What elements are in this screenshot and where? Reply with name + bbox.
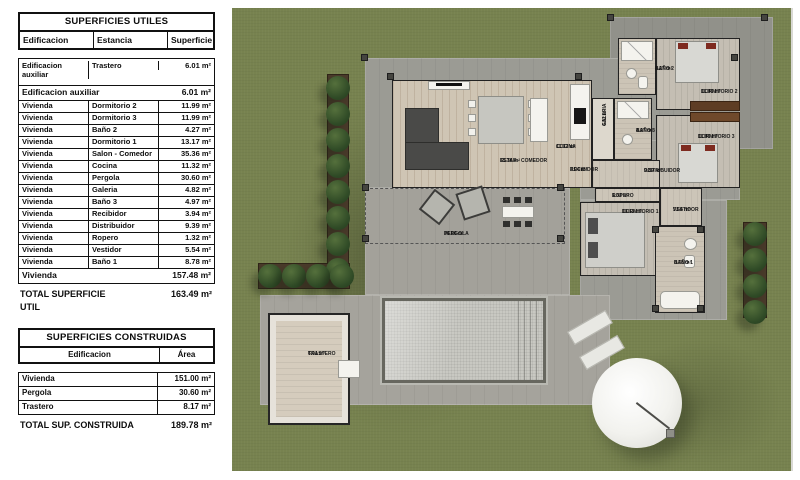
cell-superficie: 6.01 m²: [159, 61, 214, 70]
pillar: [652, 305, 659, 312]
pillar: [557, 184, 564, 191]
cell-superficie: 11.32 m²: [159, 161, 214, 172]
cell-estancia: Baño 2: [89, 125, 159, 136]
col-header-superficie: Superficie: [168, 32, 213, 48]
cell-superficie: 8.78 m²: [159, 257, 214, 268]
pillar: [652, 226, 659, 233]
shower: [621, 41, 653, 61]
outdoor-chair: [503, 197, 510, 203]
cell-area: 8.17 m²: [158, 401, 214, 414]
subtotal-label: Edificacion auxiliar: [19, 86, 115, 100]
tree: [743, 248, 767, 272]
subtotal-label: Vivienda: [19, 269, 115, 283]
cell-superficie: 5.54 m²: [159, 245, 214, 256]
cooktop: [574, 108, 586, 124]
cell-estancia: Ropero: [89, 233, 159, 244]
cell-estancia: Distribuidor: [89, 221, 159, 232]
table-title: SUPERFICIES CONSTRUIDAS: [18, 328, 215, 348]
table-body: Edificacion auxiliarTrastero6.01 m² Edif…: [18, 58, 215, 284]
cell-edificacion: Vivienda: [19, 101, 89, 112]
cell-edificacion: Edificacion auxiliar: [19, 61, 89, 79]
site-plan: ESTAR - COMEDOR35.36 m² COCINA11.32 m² R…: [232, 8, 793, 471]
pillar: [361, 54, 368, 61]
table-row: ViviendaVestidor5.54 m²: [19, 244, 214, 256]
table-row: ViviendaRecibidor3.94 m²: [19, 208, 214, 220]
outdoor-chair: [514, 221, 521, 227]
sink: [622, 134, 633, 145]
cell-area: 151.00 m²: [158, 373, 214, 386]
sink: [626, 68, 637, 79]
col-header-area: Área: [160, 348, 213, 362]
cell-superficie: 4.97 m²: [159, 197, 214, 208]
subtotal-row: Vivienda157.48 m²: [19, 268, 214, 283]
cell-superficie: 11.99 m²: [159, 113, 214, 124]
cell-estancia: Salon - Comedor: [89, 149, 159, 160]
cell-edificacion: Vivienda: [19, 233, 89, 244]
cell-edificacion: Pergola: [19, 387, 158, 400]
wardrobe: [690, 112, 740, 122]
cell-estancia: Galeria: [89, 185, 159, 196]
cell-superficie: 11.99 m²: [159, 101, 214, 112]
cell-edificacion: Vivienda: [19, 373, 158, 386]
pillow: [678, 43, 688, 49]
toilet: [638, 76, 648, 89]
col-header-estancia: Estancia: [94, 32, 168, 48]
pillar: [607, 14, 614, 21]
tree: [743, 222, 767, 246]
pillar: [387, 73, 394, 80]
cell-superficie: 1.32 m²: [159, 233, 214, 244]
table-column-headers: Edificacion Área: [18, 346, 215, 364]
floorplan-sheet: SUPERFICIES UTILES Edificacion Estancia …: [0, 0, 800, 480]
cell-edificacion: Vivienda: [19, 125, 89, 136]
col-header-edificacion: Edificacion: [20, 32, 94, 48]
cell-edificacion: Vivienda: [19, 137, 89, 148]
total-value: 163.49 m²: [115, 288, 216, 302]
pillar: [731, 54, 738, 61]
pillar: [697, 226, 704, 233]
table-row: ViviendaCocina11.32 m²: [19, 160, 214, 172]
sink: [684, 238, 697, 250]
table-column-headers: Edificacion Estancia Superficie: [18, 30, 215, 50]
pillow: [588, 242, 598, 258]
parasol-base: [666, 429, 675, 438]
tree: [326, 232, 350, 256]
tree: [326, 102, 350, 126]
subtotal-value: 6.01 m²: [115, 86, 214, 100]
sofa: [405, 142, 469, 170]
trastero-floor: [276, 321, 342, 417]
dining-chair: [468, 100, 476, 108]
pillar: [557, 235, 564, 242]
tree: [326, 128, 350, 152]
pillar: [362, 235, 369, 242]
pillar: [697, 305, 704, 312]
table-row: ViviendaSalon - Comedor35.36 m²: [19, 148, 214, 160]
pillar: [362, 184, 369, 191]
bathtub: [660, 291, 700, 309]
shower: [617, 101, 649, 119]
cell-edificacion: Vivienda: [19, 149, 89, 160]
tv: [436, 83, 462, 86]
cell-estancia: Recibidor: [89, 209, 159, 220]
pillar: [761, 14, 768, 21]
table-row: Vivienda151.00 m²: [19, 373, 214, 386]
total-value: 189.78 m²: [171, 419, 215, 433]
outdoor-table: [502, 206, 534, 218]
cell-superficie: 3.94 m²: [159, 209, 214, 220]
cell-edificacion: Vivienda: [19, 161, 89, 172]
tree: [743, 274, 767, 298]
tree: [282, 264, 306, 288]
superficies-utiles-table: SUPERFICIES UTILES Edificacion Estancia …: [18, 12, 215, 302]
subtotal-row: Edificacion auxiliar6.01 m²: [19, 85, 214, 100]
cell-superficie: 35.36 m²: [159, 149, 214, 160]
table-body: Vivienda151.00 m² Pergola30.60 m² Traste…: [18, 372, 215, 415]
tree: [326, 76, 350, 100]
tree: [306, 264, 330, 288]
cell-estancia: Vestidor: [89, 245, 159, 256]
tree: [326, 206, 350, 230]
total-row: TOTAL SUPERFICIE UTIL 163.49 m²: [18, 288, 215, 302]
kitchen-island: [530, 98, 548, 142]
table-row: ViviendaDormitorio 211.99 m²: [19, 100, 214, 112]
cell-edificacion: Vivienda: [19, 245, 89, 256]
table-row: Trastero8.17 m²: [19, 400, 214, 414]
table-row: Pergola30.60 m²: [19, 386, 214, 400]
cell-superficie: 4.27 m²: [159, 125, 214, 136]
cell-edificacion: Vivienda: [19, 113, 89, 124]
cell-superficie: 4.82 m²: [159, 185, 214, 196]
table-row: ViviendaDormitorio 311.99 m²: [19, 112, 214, 124]
col-header-edificacion: Edificacion: [20, 348, 160, 362]
table-row: ViviendaBaño 24.27 m²: [19, 124, 214, 136]
ac-unit: [338, 360, 360, 378]
total-label: TOTAL SUPERFICIE UTIL: [18, 288, 115, 302]
total-row: TOTAL SUP. CONSTRUIDA 189.78 m²: [18, 419, 215, 433]
cell-estancia: Dormitorio 3: [89, 113, 159, 124]
cell-estancia: Dormitorio 1: [89, 137, 159, 148]
outdoor-chair: [525, 221, 532, 227]
cell-estancia: Cocina: [89, 161, 159, 172]
subtotal-value: 157.48 m²: [115, 269, 214, 283]
cell-edificacion: Vivienda: [19, 209, 89, 220]
wardrobe: [690, 101, 740, 111]
tree: [258, 264, 282, 288]
table-row: ViviendaBaño 34.97 m²: [19, 196, 214, 208]
cell-estancia: Dormitorio 2: [89, 101, 159, 112]
outdoor-chair: [525, 197, 532, 203]
cell-estancia: Trastero: [89, 61, 159, 70]
table-row: ViviendaDormitorio 113.17 m²: [19, 136, 214, 148]
cell-superficie: 13.17 m²: [159, 137, 214, 148]
pillar: [575, 73, 582, 80]
cell-estancia: Baño 3: [89, 197, 159, 208]
cell-estancia: Pergola: [89, 173, 159, 184]
table-row: ViviendaDistribuidor9.39 m²: [19, 220, 214, 232]
cell-edificacion: Trastero: [19, 401, 158, 414]
room-distribuidor: [592, 160, 660, 188]
table-row: ViviendaPergola30.60 m²: [19, 172, 214, 184]
superficies-construidas-table: SUPERFICIES CONSTRUIDAS Edificacion Área…: [18, 328, 215, 433]
cell-edificacion: Vivienda: [19, 197, 89, 208]
pool-steps: [518, 301, 542, 380]
cell-superficie: 30.60 m²: [159, 173, 214, 184]
cell-edificacion: Vivienda: [19, 221, 89, 232]
tree: [326, 154, 350, 178]
cell-superficie: 9.39 m²: [159, 221, 214, 232]
cell-area: 30.60 m²: [158, 387, 214, 400]
pillow: [588, 218, 598, 234]
cell-edificacion: Vivienda: [19, 185, 89, 196]
pillow: [705, 145, 715, 151]
outdoor-chair: [514, 197, 521, 203]
dining-table: [478, 96, 524, 144]
tree: [330, 264, 354, 288]
tree: [326, 180, 350, 204]
total-label: TOTAL SUP. CONSTRUIDA: [18, 419, 171, 433]
table-row: Edificacion auxiliarTrastero6.01 m²: [19, 59, 214, 85]
outdoor-chair: [503, 221, 510, 227]
cell-edificacion: Vivienda: [19, 173, 89, 184]
cell-edificacion: Vivienda: [19, 257, 89, 268]
pillow: [706, 43, 716, 49]
table-title: SUPERFICIES UTILES: [18, 12, 215, 32]
cell-estancia: Baño 1: [89, 257, 159, 268]
table-row: ViviendaGaleria4.82 m²: [19, 184, 214, 196]
dining-chair: [468, 114, 476, 122]
pillow: [681, 145, 691, 151]
dining-chair: [468, 128, 476, 136]
table-row: ViviendaBaño 18.78 m²: [19, 256, 214, 268]
tree: [743, 300, 767, 324]
table-row: ViviendaRopero1.32 m²: [19, 232, 214, 244]
area-tables-panel: SUPERFICIES UTILES Edificacion Estancia …: [18, 12, 215, 433]
